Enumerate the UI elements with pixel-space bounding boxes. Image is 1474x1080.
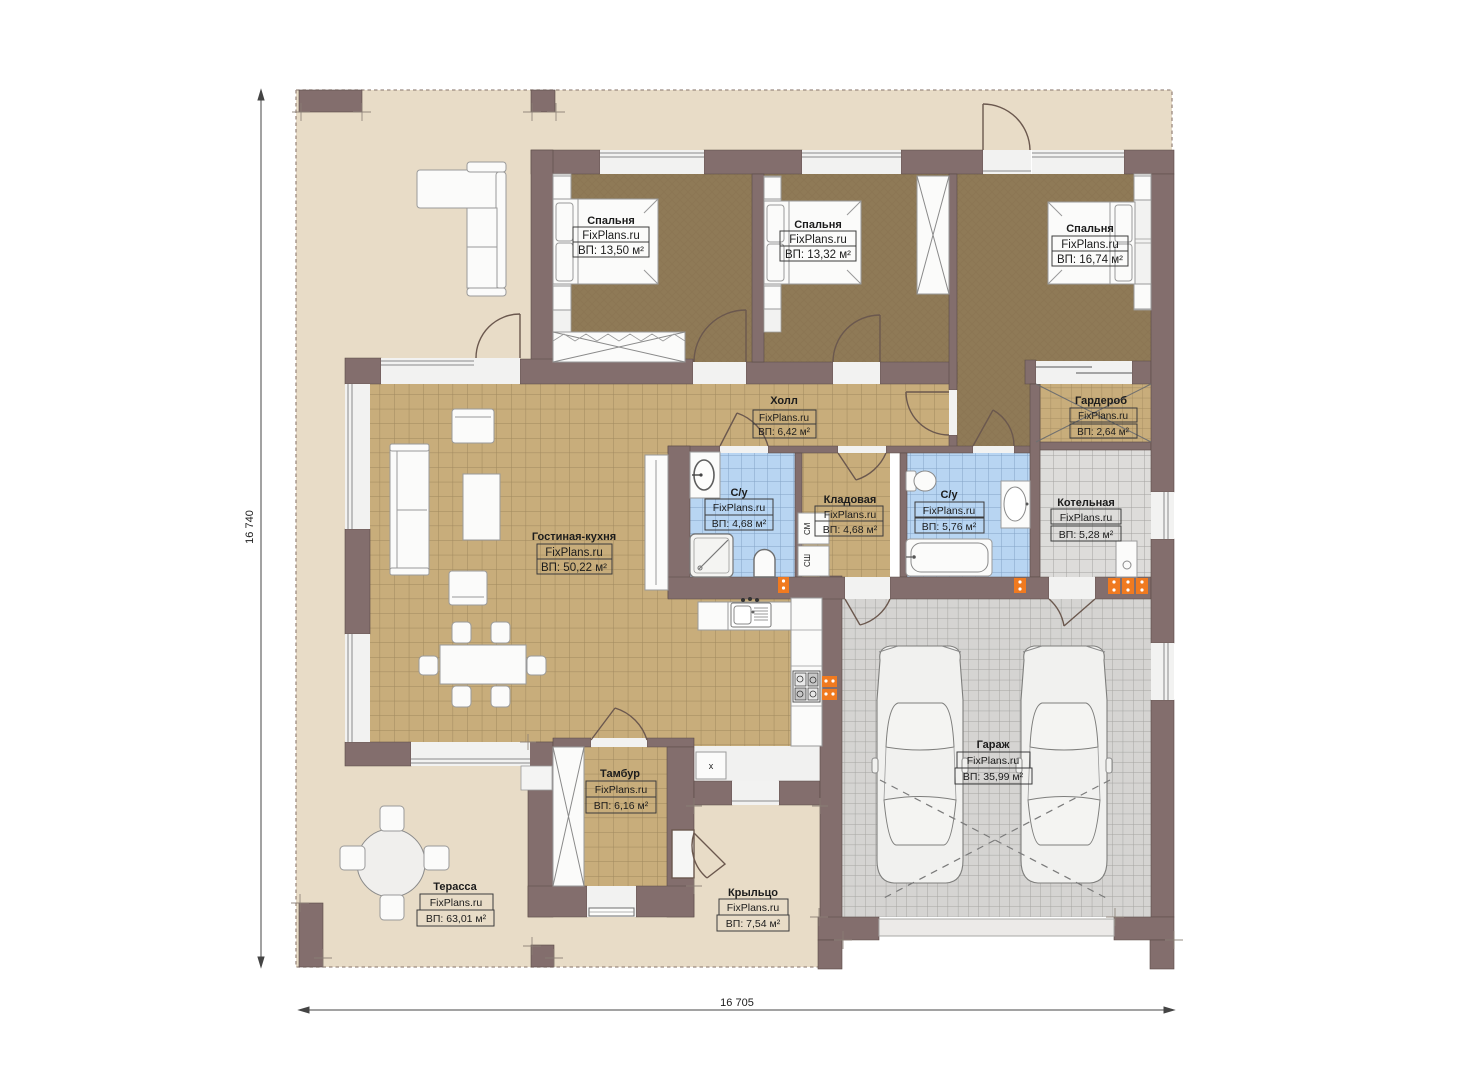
svg-text:FixPlans.ru: FixPlans.ru	[824, 509, 877, 521]
svg-text:ВП: 5,28 м²: ВП: 5,28 м²	[1059, 529, 1114, 541]
svg-text:FixPlans.ru: FixPlans.ru	[727, 902, 780, 914]
svg-text:ВП: 4,68 м²: ВП: 4,68 м²	[712, 518, 767, 530]
svg-text:16 705: 16 705	[720, 997, 754, 1009]
svg-text:ВП: 5,76 м²: ВП: 5,76 м²	[922, 521, 977, 533]
svg-text:FixPlans.ru: FixPlans.ru	[582, 230, 640, 242]
svg-text:ВП: 6,42 м²: ВП: 6,42 м²	[758, 427, 811, 438]
svg-text:ВП: 63,01 м²: ВП: 63,01 м²	[426, 913, 487, 925]
svg-text:FixPlans.ru: FixPlans.ru	[595, 784, 648, 796]
svg-text:Спальня: Спальня	[587, 215, 635, 227]
svg-text:ВП: 50,22 м²: ВП: 50,22 м²	[541, 562, 607, 574]
svg-text:Спальня: Спальня	[794, 219, 842, 231]
svg-text:FixPlans.ru: FixPlans.ru	[1060, 512, 1113, 524]
svg-text:FixPlans.ru: FixPlans.ru	[430, 897, 483, 909]
svg-text:Терасса: Терасса	[433, 881, 477, 893]
svg-text:FixPlans.ru: FixPlans.ru	[545, 547, 603, 559]
svg-text:FixPlans.ru: FixPlans.ru	[923, 505, 976, 517]
svg-text:ВП: 16,74 м²: ВП: 16,74 м²	[1057, 254, 1123, 266]
svg-text:FixPlans.ru: FixPlans.ru	[759, 413, 809, 424]
svg-text:Холл: Холл	[770, 395, 798, 407]
svg-text:ВП: 4,68 м²: ВП: 4,68 м²	[823, 524, 878, 536]
svg-text:С/у: С/у	[940, 489, 958, 501]
svg-text:ВП: 13,50 м²: ВП: 13,50 м²	[578, 245, 644, 257]
svg-text:ВП: 35,99 м²: ВП: 35,99 м²	[963, 771, 1024, 783]
svg-text:x: x	[709, 761, 714, 771]
svg-text:Крыльцо: Крыльцо	[728, 887, 778, 899]
svg-text:ВП: 13,32 м²: ВП: 13,32 м²	[785, 249, 851, 261]
svg-text:ВП: 6,16 м²: ВП: 6,16 м²	[594, 800, 649, 812]
svg-text:Тамбур: Тамбур	[600, 768, 640, 780]
svg-text:С/у: С/у	[730, 487, 748, 499]
svg-text:FixPlans.ru: FixPlans.ru	[967, 755, 1020, 767]
svg-text:FixPlans.ru: FixPlans.ru	[1078, 411, 1128, 422]
svg-text:СШ: СШ	[803, 554, 812, 567]
svg-text:ВП: 2,64 м²: ВП: 2,64 м²	[1077, 427, 1130, 438]
svg-text:Гараж: Гараж	[977, 739, 1010, 751]
svg-text:Кладовая: Кладовая	[824, 494, 877, 506]
svg-text:Гардероб: Гардероб	[1075, 395, 1127, 407]
svg-text:16 740: 16 740	[244, 510, 256, 544]
svg-text:FixPlans.ru: FixPlans.ru	[1061, 239, 1119, 251]
svg-text:СМ: СМ	[803, 522, 812, 535]
svg-text:Спальня: Спальня	[1066, 223, 1114, 235]
svg-text:Котельная: Котельная	[1057, 497, 1115, 509]
svg-text:Гостиная-кухня: Гостиная-кухня	[532, 531, 616, 543]
svg-text:FixPlans.ru: FixPlans.ru	[713, 502, 766, 514]
svg-text:FixPlans.ru: FixPlans.ru	[789, 234, 847, 246]
svg-text:ВП: 7,54 м²: ВП: 7,54 м²	[726, 918, 781, 930]
